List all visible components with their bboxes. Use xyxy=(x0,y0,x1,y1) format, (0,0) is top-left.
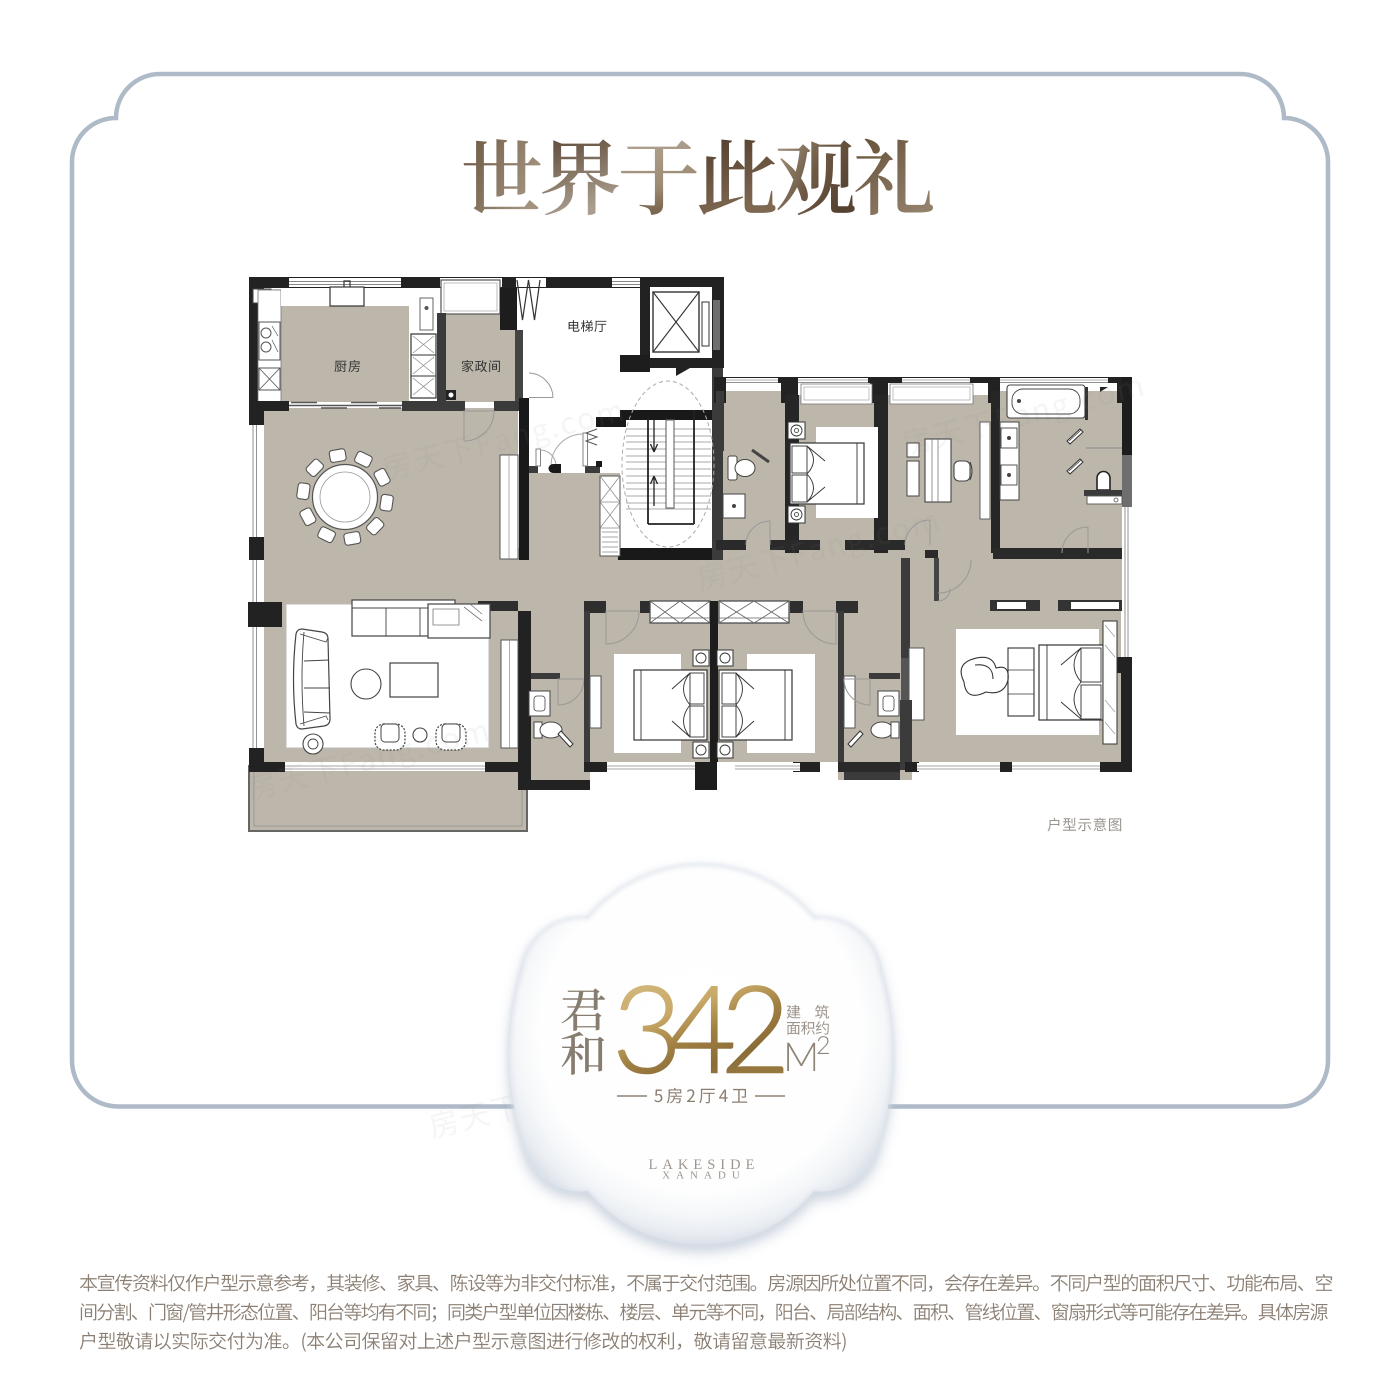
svg-text:XANADU: XANADU xyxy=(662,1170,746,1182)
